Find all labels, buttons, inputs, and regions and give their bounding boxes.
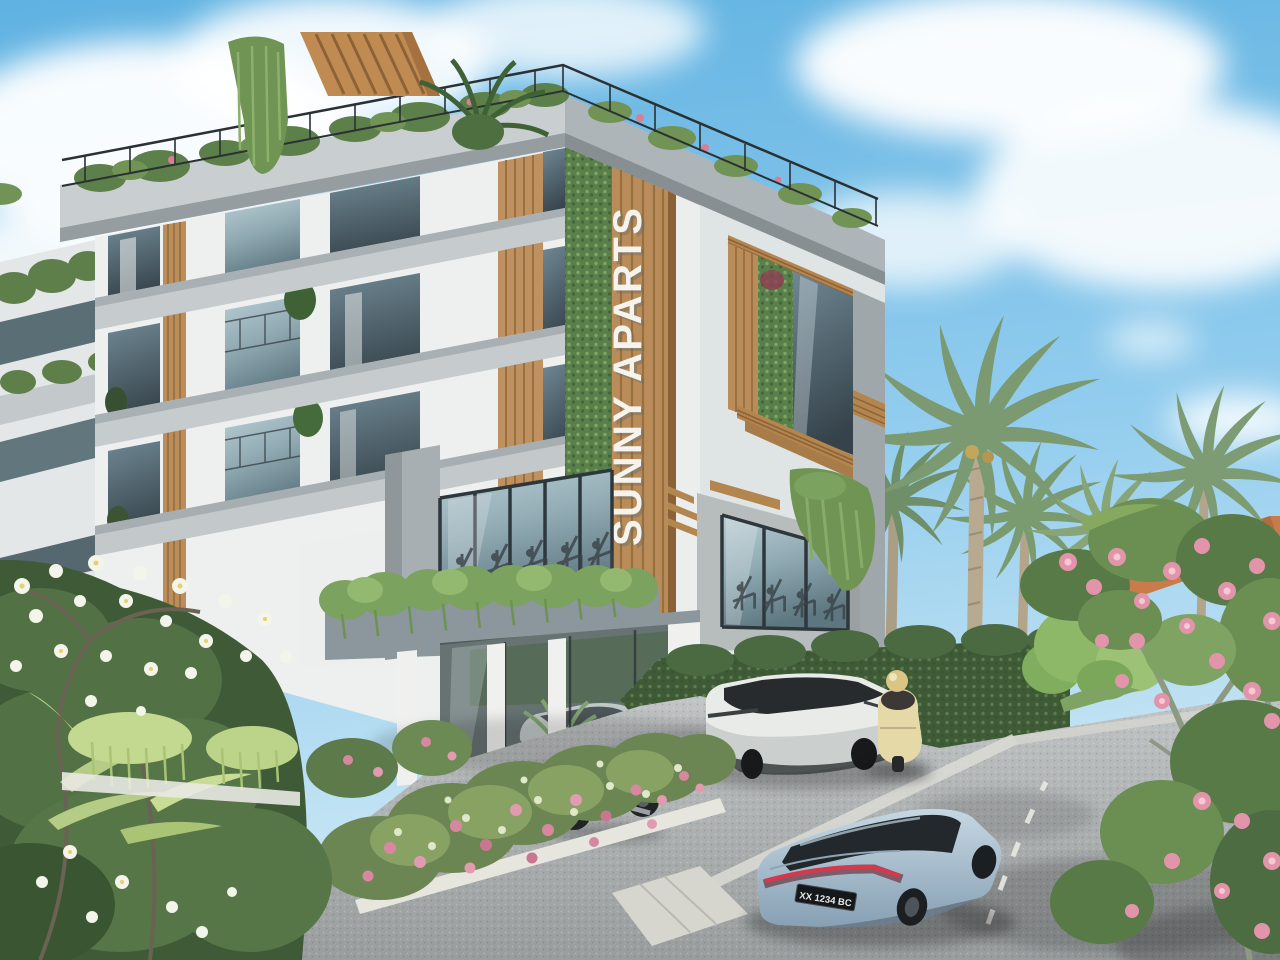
scene-render: SUNNY APARTS SUNNY APARTS <box>0 0 1280 960</box>
scooter-seat <box>881 690 915 710</box>
render-canvas: SUNNY APARTS SUNNY APARTS <box>0 0 1280 960</box>
red-foliage-accent <box>760 270 784 290</box>
coconut <box>982 451 994 463</box>
coconut <box>965 445 979 459</box>
scooter-helmet <box>886 670 908 692</box>
